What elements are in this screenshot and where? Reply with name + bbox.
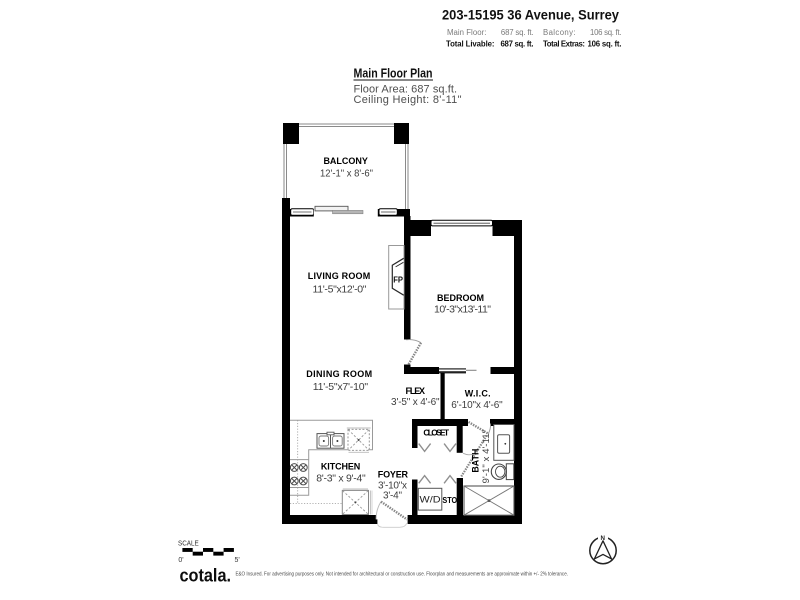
svg-text:FOYER: FOYER xyxy=(378,469,409,479)
svg-text:11'-5"x7'-10": 11'-5"x7'-10" xyxy=(313,381,369,393)
svg-text:FP: FP xyxy=(393,275,403,285)
svg-text:DINING ROOM: DINING ROOM xyxy=(306,369,372,379)
svg-text:9'-1" x 4'-11": 9'-1" x 4'-11" xyxy=(481,430,492,484)
svg-text:Main Floor Plan: Main Floor Plan xyxy=(354,67,433,81)
svg-text:CLOSET: CLOSET xyxy=(423,428,449,438)
svg-text:BEDROOM: BEDROOM xyxy=(437,293,484,303)
svg-text:Balcony:: Balcony: xyxy=(543,28,576,37)
svg-text:BALCONY: BALCONY xyxy=(323,156,368,166)
svg-text:Total Livable:: Total Livable: xyxy=(446,40,495,49)
svg-text:Total Extras:: Total Extras: xyxy=(543,40,585,49)
svg-text:3'-5" x 4'-6": 3'-5" x 4'-6" xyxy=(391,397,440,408)
svg-text:KITCHEN: KITCHEN xyxy=(321,462,360,472)
svg-text:106 sq. ft.: 106 sq. ft. xyxy=(588,40,622,49)
svg-text:106 sq. ft.: 106 sq. ft. xyxy=(590,28,622,37)
svg-text:BATH: BATH xyxy=(470,448,481,472)
svg-text:0': 0' xyxy=(178,557,183,564)
svg-text:cotala.: cotala. xyxy=(180,565,232,586)
svg-text:203-15195 36 Avenue, Surrey: 203-15195 36 Avenue, Surrey xyxy=(442,7,619,23)
svg-text:8'-3" x 9'-4": 8'-3" x 9'-4" xyxy=(316,473,366,485)
svg-text:10'-3"x13'-11": 10'-3"x13'-11" xyxy=(434,304,491,316)
svg-text:Main Floor:: Main Floor: xyxy=(447,28,486,37)
svg-text:LIVING ROOM: LIVING ROOM xyxy=(308,271,371,281)
svg-text:12'-1" x 8'-6": 12'-1" x 8'-6" xyxy=(320,168,373,180)
svg-text:11'-5"x12'-0": 11'-5"x12'-0" xyxy=(313,284,367,296)
svg-text:5': 5' xyxy=(235,557,240,564)
svg-text:687 sq. ft.: 687 sq. ft. xyxy=(501,28,534,37)
svg-text:W.I.C.: W.I.C. xyxy=(465,388,491,398)
svg-text:SCALE: SCALE xyxy=(178,540,199,547)
svg-text:E&O Insured. For advertising p: E&O Insured. For advertising purposes on… xyxy=(236,572,569,578)
svg-text:687 sq. ft.: 687 sq. ft. xyxy=(501,40,534,49)
svg-text:6'-10"x 4'-6": 6'-10"x 4'-6" xyxy=(451,400,503,411)
svg-text:STO.: STO. xyxy=(442,496,459,505)
svg-text:W/D: W/D xyxy=(420,495,441,506)
svg-text:3'-4": 3'-4" xyxy=(383,490,402,501)
svg-text:Ceiling Height: 8'-11": Ceiling Height: 8'-11" xyxy=(354,94,462,106)
svg-text:FLEX: FLEX xyxy=(406,386,426,396)
